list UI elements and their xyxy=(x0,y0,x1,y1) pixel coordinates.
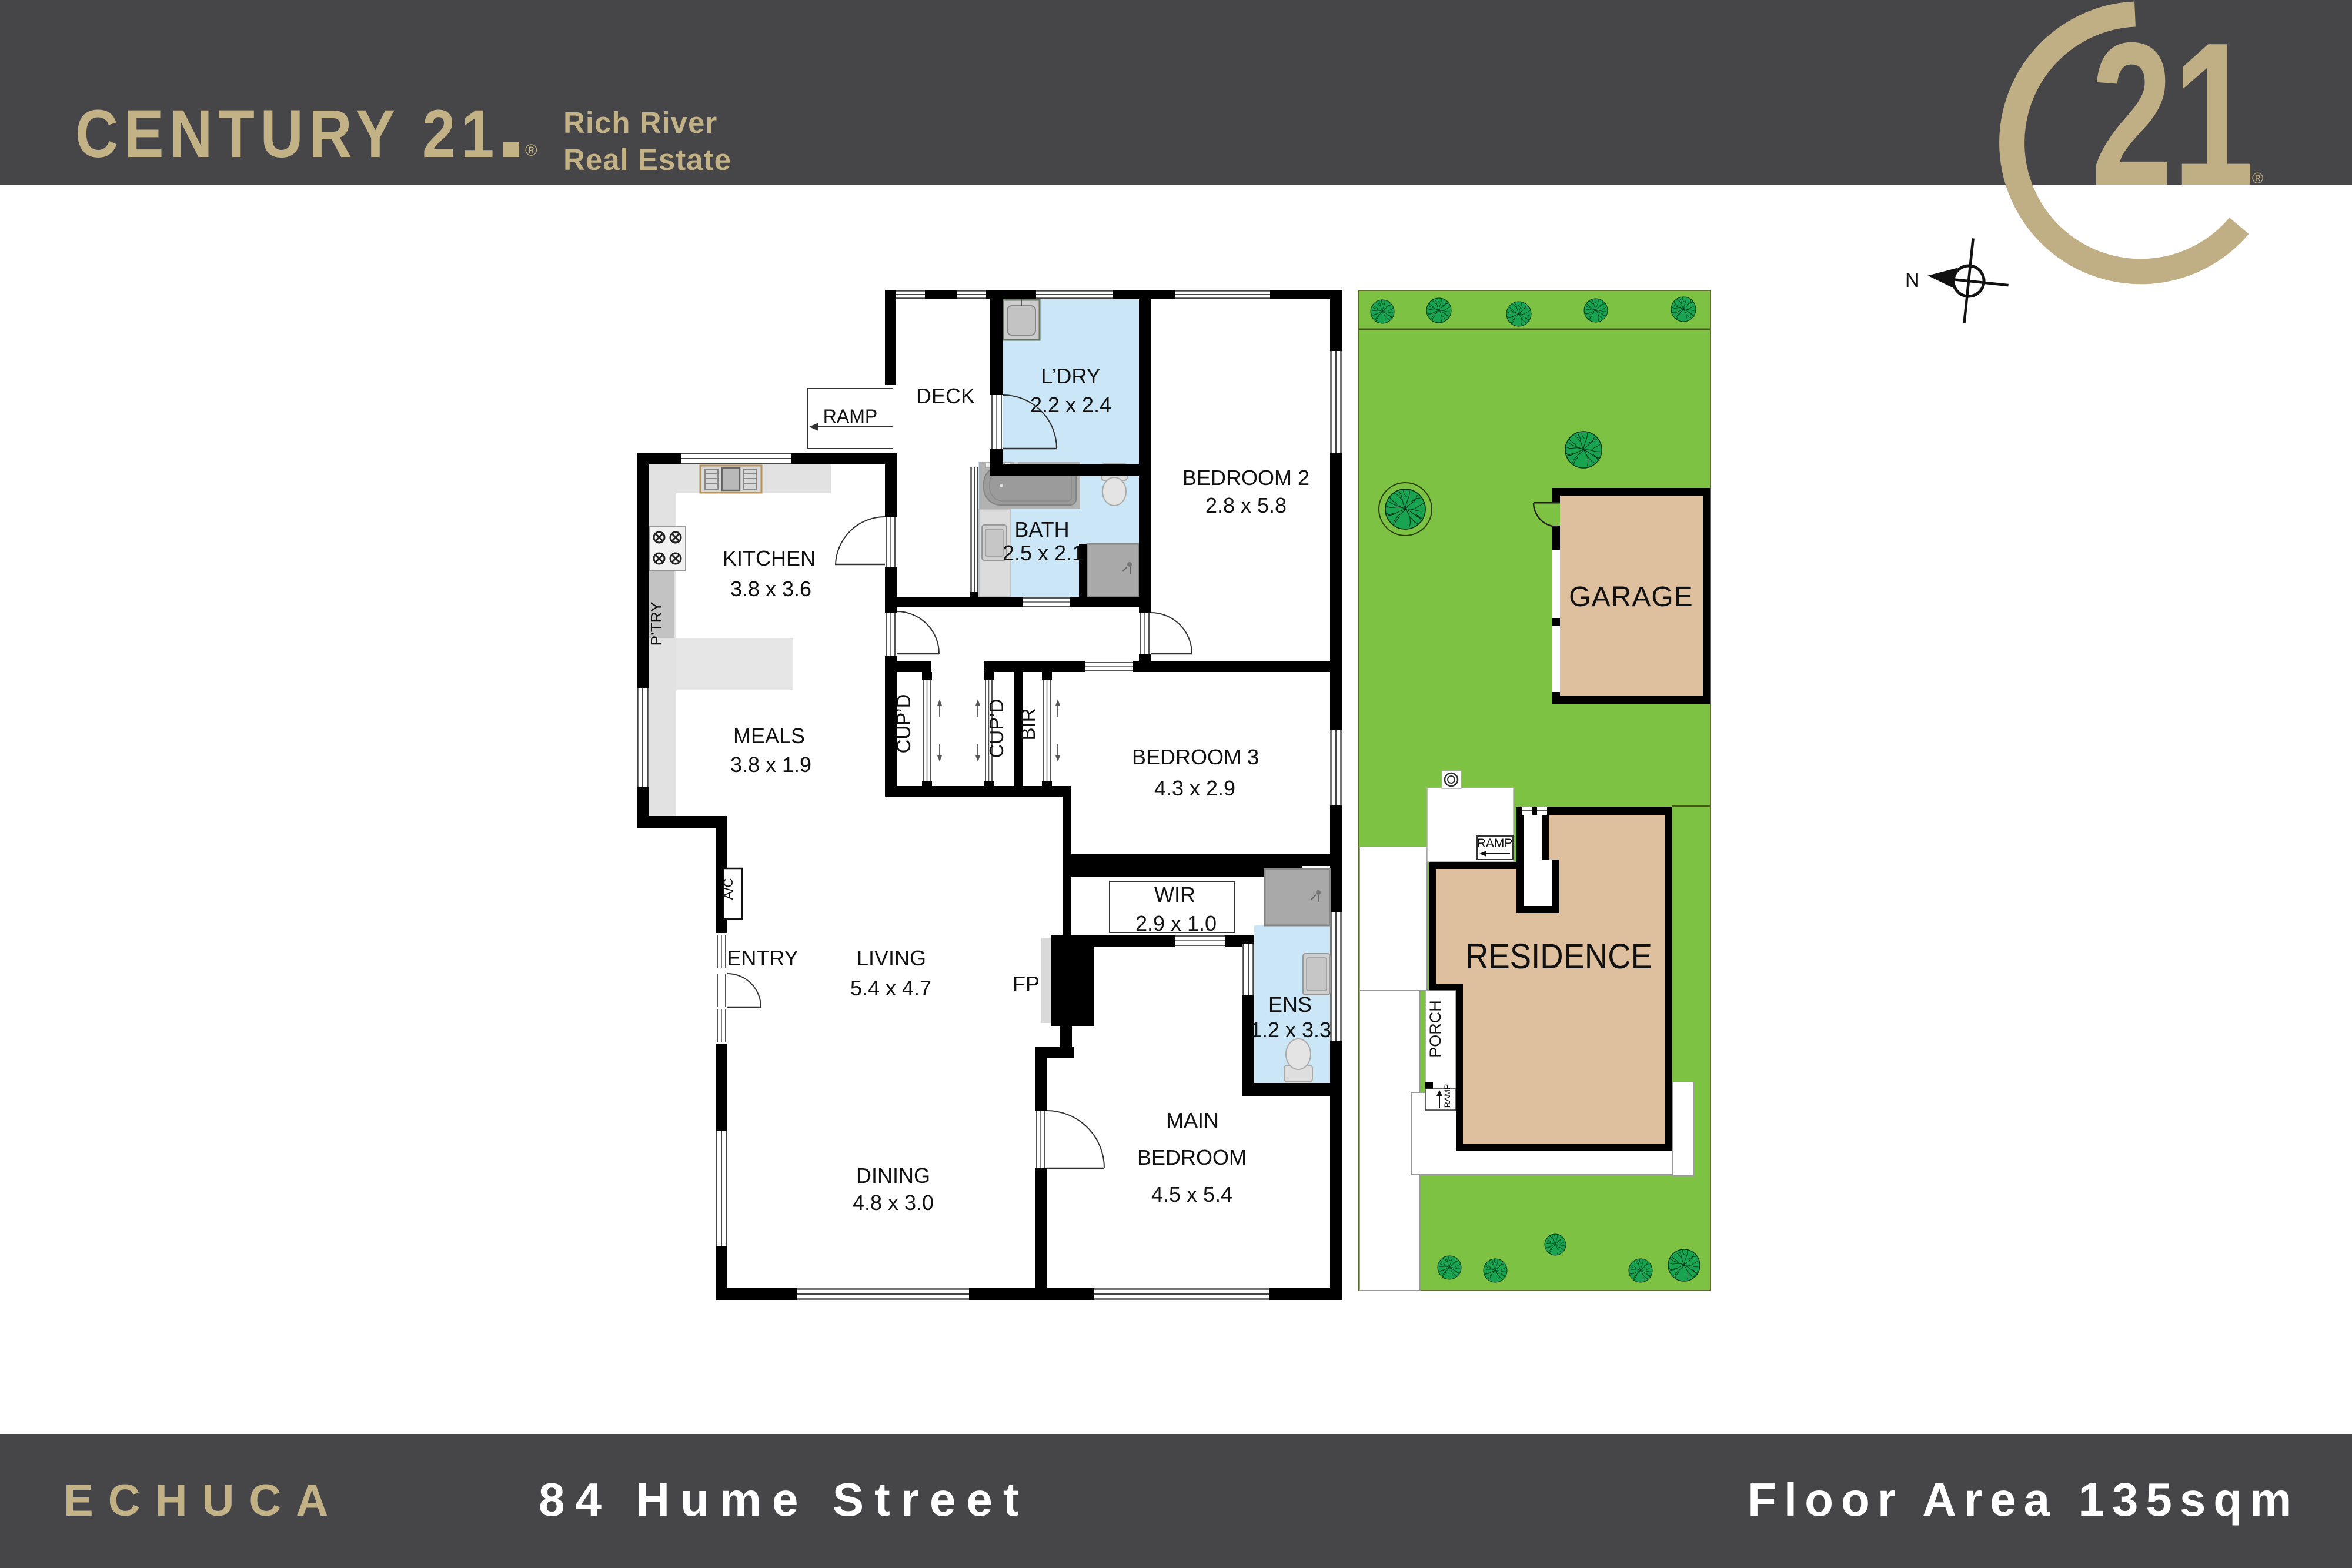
svg-text:BATH: BATH xyxy=(1014,517,1069,541)
svg-text:84 Hume Street: 84 Hume Street xyxy=(539,1473,1029,1526)
svg-text:®: ® xyxy=(525,141,537,159)
svg-text:N: N xyxy=(1905,269,1920,292)
svg-text:BEDROOM 2: BEDROOM 2 xyxy=(1182,466,1309,490)
svg-text:P’TRY: P’TRY xyxy=(647,602,665,646)
svg-text:ECHUCA: ECHUCA xyxy=(64,1476,343,1526)
svg-text:A/C: A/C xyxy=(721,878,736,900)
svg-text:BEDROOM 3: BEDROOM 3 xyxy=(1132,745,1259,769)
svg-text:GARAGE: GARAGE xyxy=(1569,581,1693,613)
svg-text:RAMP: RAMP xyxy=(1442,1084,1452,1108)
svg-text:FP: FP xyxy=(1013,972,1040,996)
svg-text:MAIN: MAIN xyxy=(1166,1108,1219,1132)
svg-text:ENS: ENS xyxy=(1268,992,1312,1017)
svg-text:RAMP: RAMP xyxy=(1477,837,1513,850)
svg-text:KITCHEN: KITCHEN xyxy=(723,546,816,570)
svg-text:21: 21 xyxy=(2091,0,2254,228)
svg-text:DECK: DECK xyxy=(916,384,975,408)
svg-text:BEDROOM: BEDROOM xyxy=(1137,1145,1247,1169)
svg-text:RAMP: RAMP xyxy=(823,406,877,427)
svg-text:LIVING: LIVING xyxy=(857,946,926,970)
svg-text:CUP’D: CUP’D xyxy=(985,699,1007,758)
svg-text:5.4 x 4.7: 5.4 x 4.7 xyxy=(850,976,931,1000)
svg-text:CENTURY 21: CENTURY 21 xyxy=(75,96,500,172)
svg-text:4.8 x 3.0: 4.8 x 3.0 xyxy=(853,1191,934,1215)
svg-text:BIR: BIR xyxy=(1017,708,1039,740)
svg-text:4.3 x 2.9: 4.3 x 2.9 xyxy=(1154,776,1235,800)
svg-text:CUP’D: CUP’D xyxy=(893,694,914,754)
svg-text:DINING: DINING xyxy=(856,1164,930,1188)
svg-text:MEALS: MEALS xyxy=(733,724,805,748)
svg-text:®: ® xyxy=(2252,169,2263,187)
svg-text:Real Estate: Real Estate xyxy=(563,143,731,176)
svg-text:1.2 x 3.3: 1.2 x 3.3 xyxy=(1250,1018,1331,1042)
svg-text:2.5 x 2.1: 2.5 x 2.1 xyxy=(1003,541,1084,565)
svg-text:RESIDENCE: RESIDENCE xyxy=(1465,937,1652,976)
svg-text:L’DRY: L’DRY xyxy=(1041,364,1100,388)
svg-text:2.9 x 1.0: 2.9 x 1.0 xyxy=(1135,911,1217,935)
svg-text:Rich River: Rich River xyxy=(563,106,717,139)
svg-text:2.8 x 5.8: 2.8 x 5.8 xyxy=(1205,493,1287,517)
svg-text:4.5 x 5.4: 4.5 x 5.4 xyxy=(1151,1182,1232,1206)
svg-text:2.2 x 2.4: 2.2 x 2.4 xyxy=(1030,393,1111,417)
svg-text:WIR: WIR xyxy=(1154,882,1195,907)
svg-text:3.8 x 1.9: 3.8 x 1.9 xyxy=(730,753,811,777)
svg-text:3.8 x 3.6: 3.8 x 3.6 xyxy=(730,577,811,601)
svg-text:Floor Area 135sqm: Floor Area 135sqm xyxy=(1748,1473,2299,1526)
svg-text:PORCH: PORCH xyxy=(1426,1000,1444,1058)
svg-text:ENTRY: ENTRY xyxy=(727,946,798,970)
